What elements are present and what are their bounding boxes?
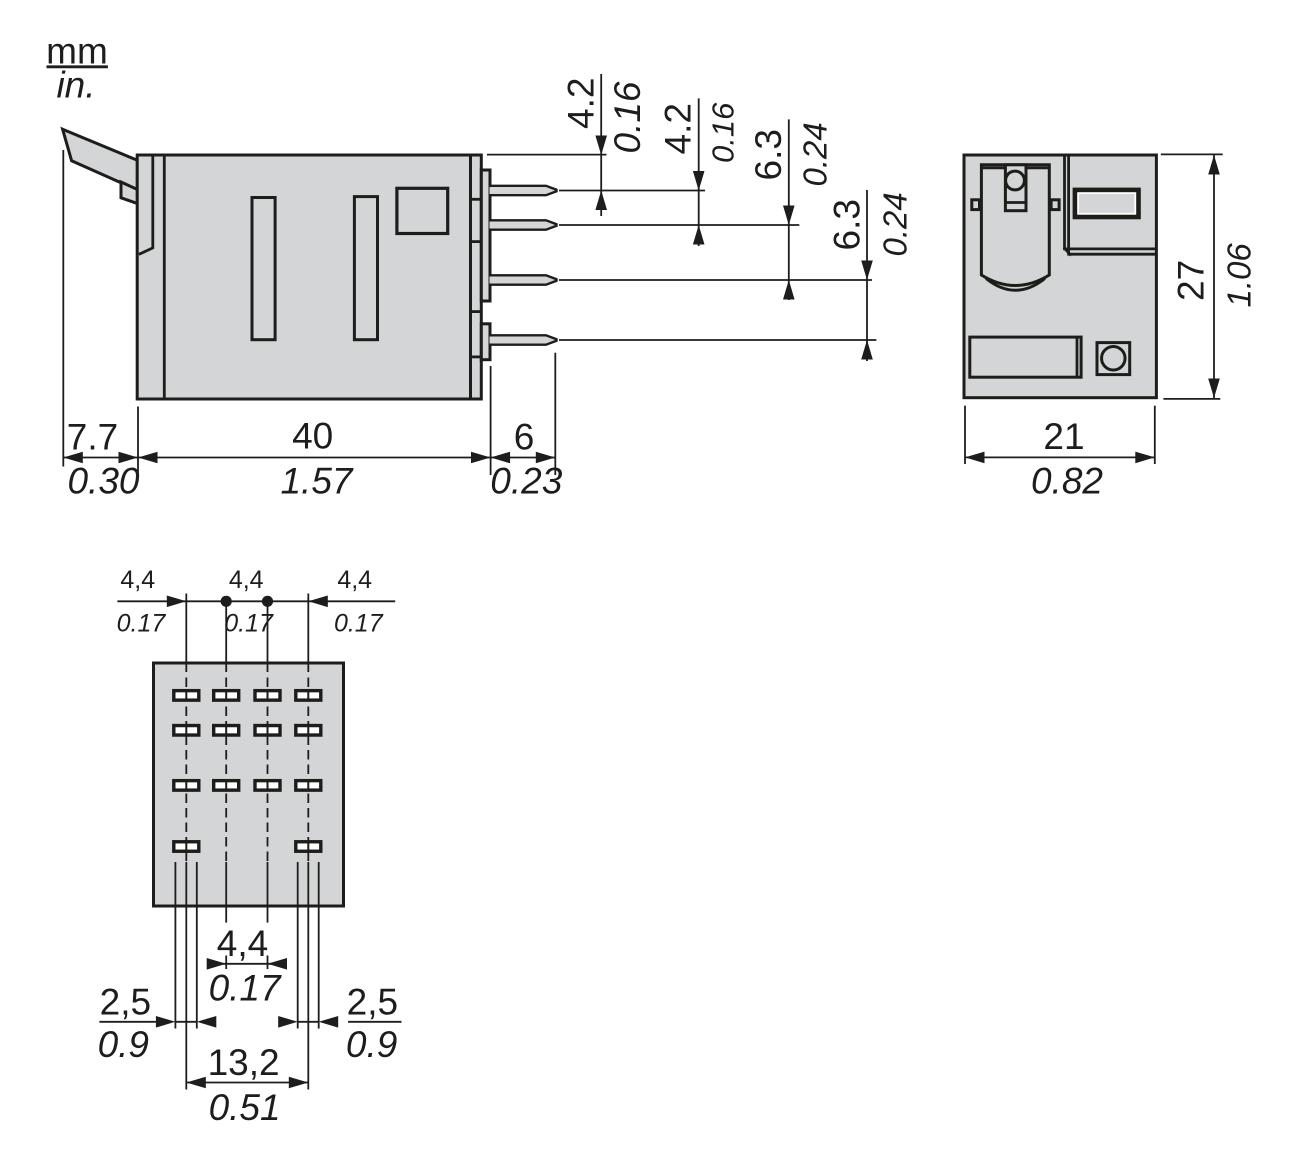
svg-text:0.30: 0.30 bbox=[67, 461, 139, 502]
svg-text:4.2: 4.2 bbox=[658, 103, 699, 154]
svg-text:1.57: 1.57 bbox=[280, 461, 353, 502]
svg-text:in.: in. bbox=[56, 65, 95, 106]
svg-text:4,4: 4,4 bbox=[229, 566, 264, 594]
svg-text:0.17: 0.17 bbox=[117, 610, 167, 638]
svg-text:0.9: 0.9 bbox=[98, 1024, 149, 1065]
svg-text:0.9: 0.9 bbox=[346, 1024, 397, 1065]
svg-text:2,5: 2,5 bbox=[100, 982, 151, 1023]
svg-text:4.2: 4.2 bbox=[561, 78, 602, 129]
svg-text:6: 6 bbox=[514, 417, 535, 458]
svg-text:0.17: 0.17 bbox=[334, 610, 384, 638]
svg-text:4,4: 4,4 bbox=[120, 566, 155, 594]
svg-text:7.7: 7.7 bbox=[67, 417, 118, 458]
svg-text:0.23: 0.23 bbox=[490, 461, 562, 502]
svg-text:0.16: 0.16 bbox=[607, 81, 648, 153]
svg-text:27: 27 bbox=[1171, 260, 1212, 301]
svg-text:0.17: 0.17 bbox=[209, 968, 282, 1009]
svg-text:0.51: 0.51 bbox=[209, 1087, 281, 1128]
svg-text:0.16: 0.16 bbox=[706, 102, 741, 163]
svg-text:6.3: 6.3 bbox=[827, 199, 868, 250]
svg-text:4,4: 4,4 bbox=[217, 923, 268, 964]
svg-text:6.3: 6.3 bbox=[748, 129, 789, 180]
svg-text:0.24: 0.24 bbox=[877, 192, 914, 256]
svg-text:0.17: 0.17 bbox=[224, 610, 274, 638]
svg-text:40: 40 bbox=[292, 416, 333, 457]
svg-text:21: 21 bbox=[1043, 416, 1084, 457]
svg-text:4,4: 4,4 bbox=[337, 566, 372, 594]
svg-text:1.06: 1.06 bbox=[1221, 243, 1258, 308]
svg-text:2,5: 2,5 bbox=[347, 982, 398, 1023]
svg-text:0.24: 0.24 bbox=[797, 122, 834, 186]
svg-text:0.82: 0.82 bbox=[1031, 461, 1103, 502]
svg-text:13,2: 13,2 bbox=[208, 1042, 280, 1083]
